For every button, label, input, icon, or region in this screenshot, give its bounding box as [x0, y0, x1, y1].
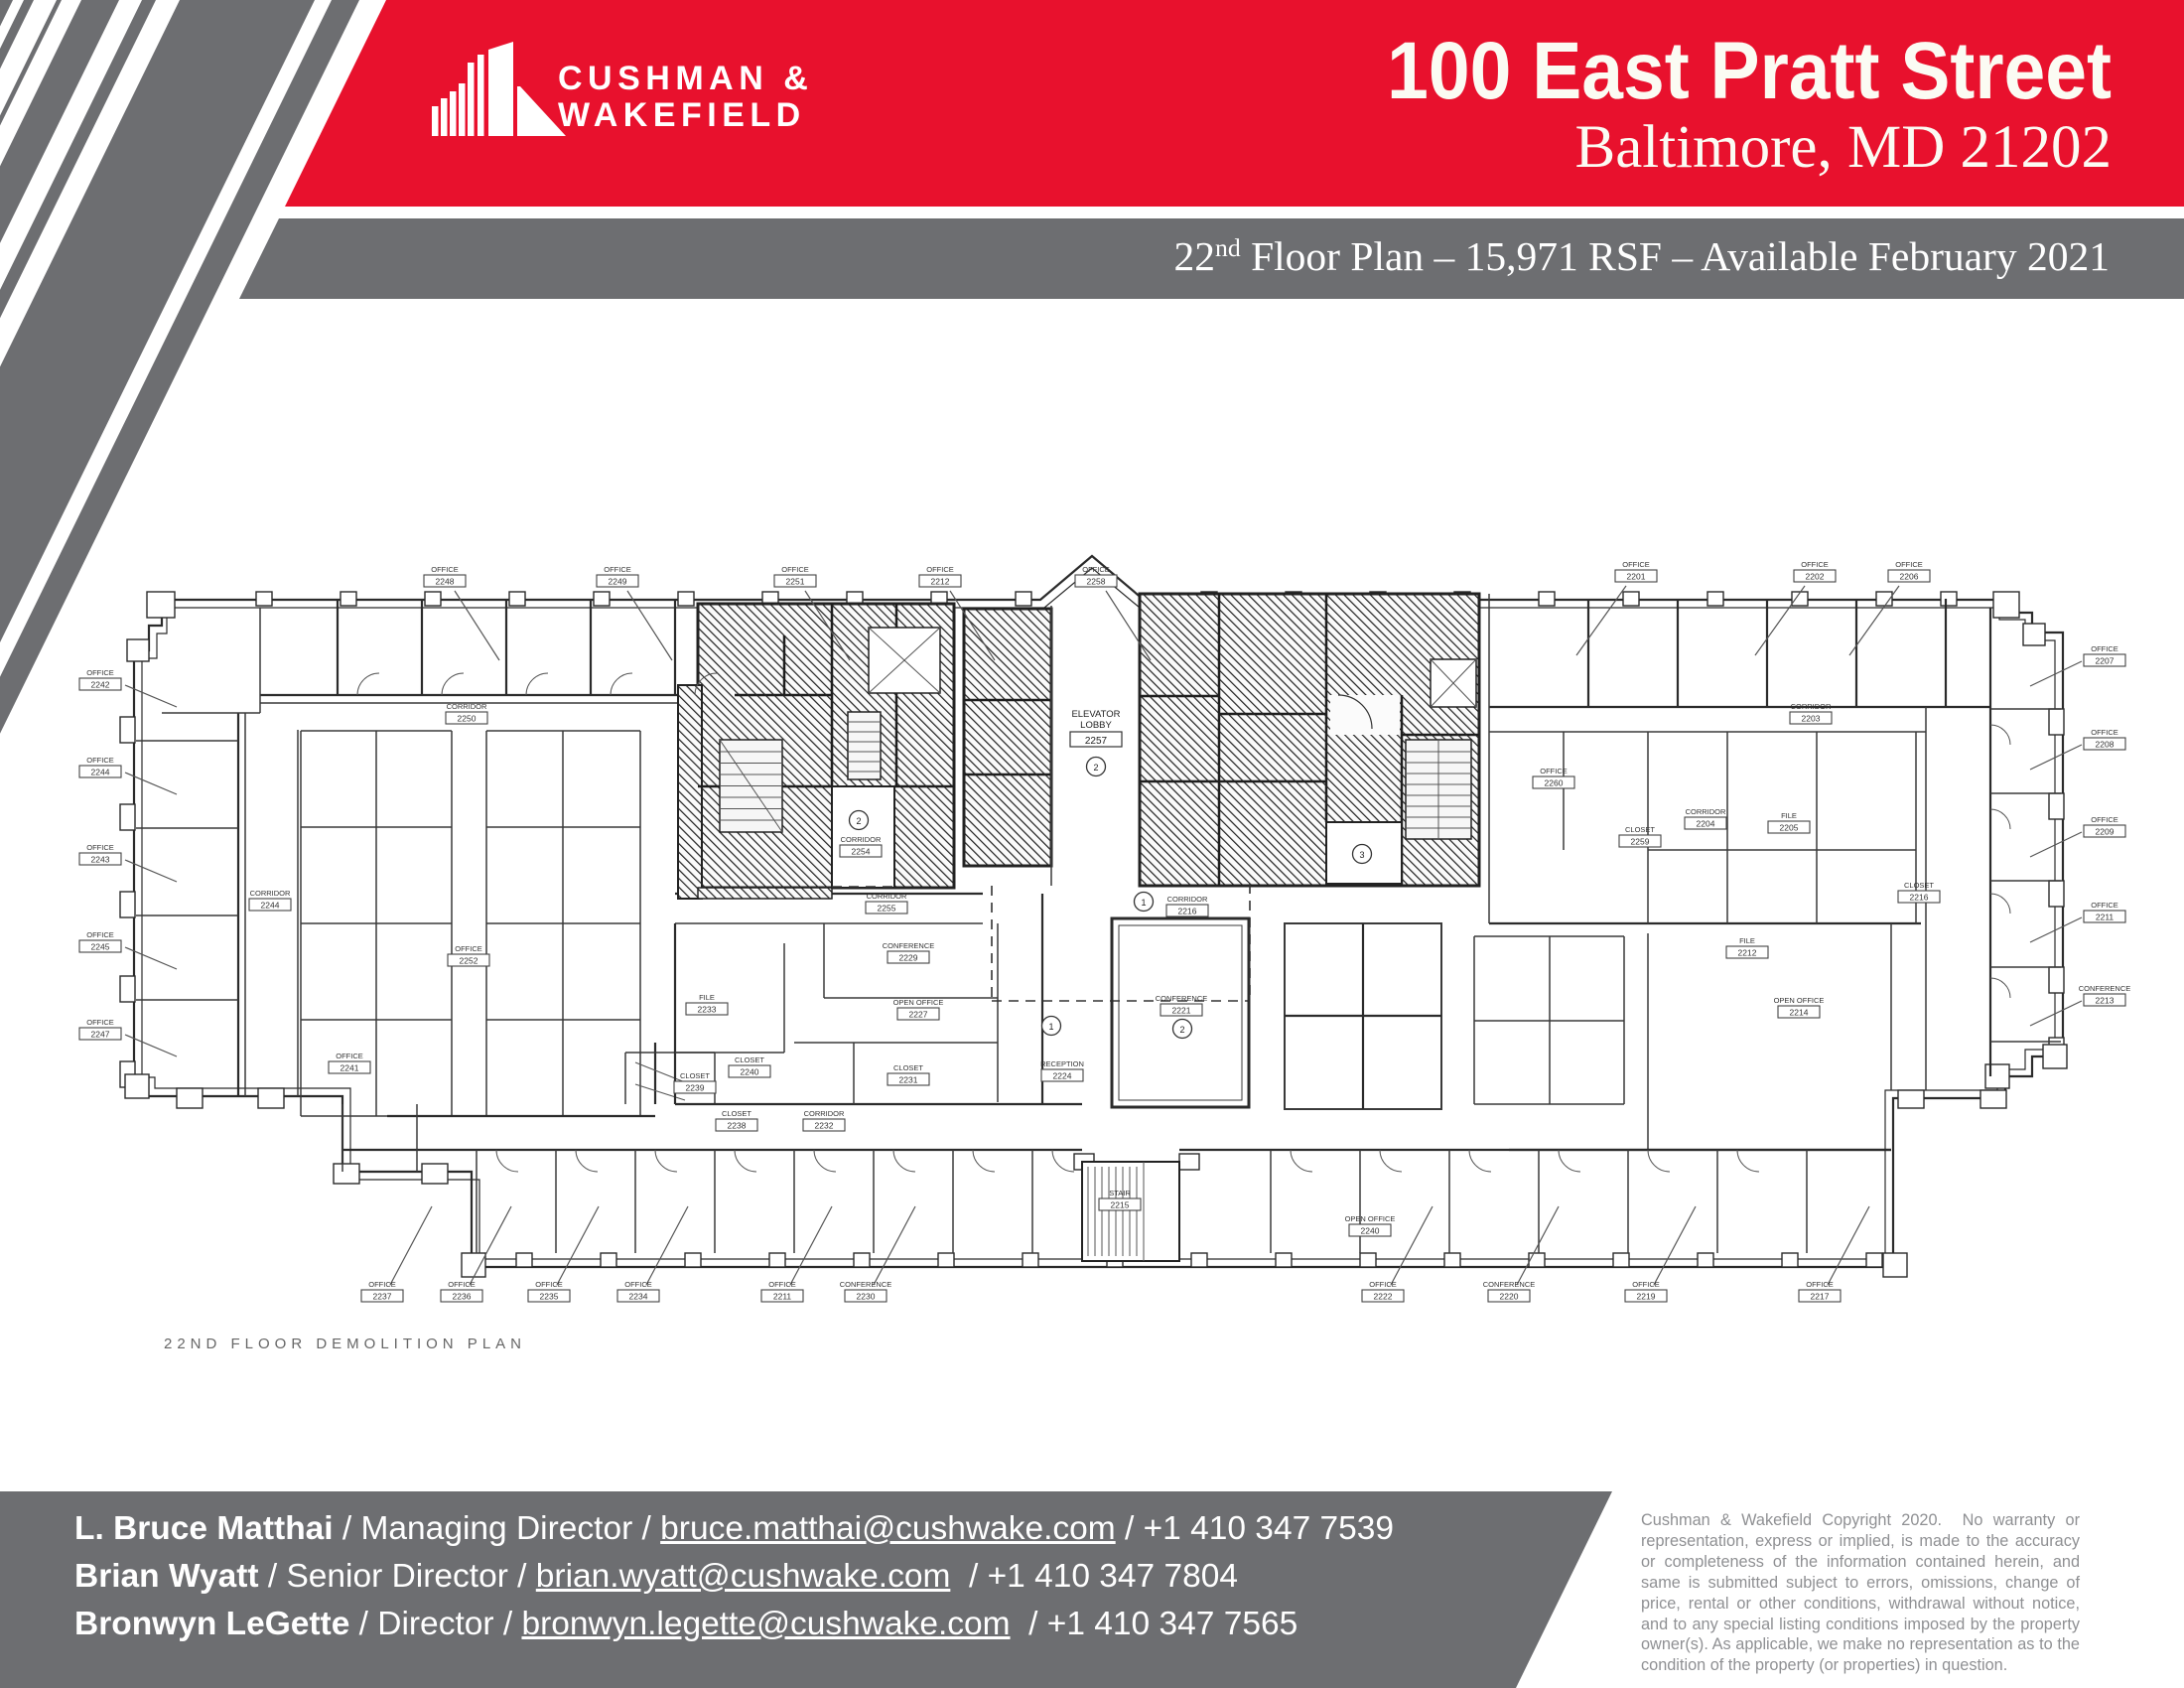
svg-text:OFFICE: OFFICE	[926, 565, 954, 574]
svg-text:OFFICE: OFFICE	[431, 565, 459, 574]
svg-text:OFFICE: OFFICE	[2091, 728, 2118, 737]
svg-text:2208: 2208	[2096, 740, 2115, 750]
svg-text:OFFICE: OFFICE	[368, 1280, 396, 1289]
svg-text:2221: 2221	[1172, 1006, 1191, 1016]
svg-text:2219: 2219	[1637, 1292, 1656, 1302]
svg-text:CONFERENCE: CONFERENCE	[1483, 1280, 1536, 1289]
svg-text:2220: 2220	[1500, 1292, 1519, 1302]
svg-text:CLOSET: CLOSET	[680, 1071, 710, 1080]
svg-text:2204: 2204	[1697, 819, 1715, 829]
svg-text:OFFICE: OFFICE	[2091, 644, 2118, 653]
svg-text:2254: 2254	[852, 847, 871, 857]
svg-text:2240: 2240	[741, 1067, 759, 1077]
svg-text:2234: 2234	[629, 1292, 648, 1302]
svg-text:CLOSET: CLOSET	[722, 1109, 751, 1118]
svg-text:2203: 2203	[1802, 714, 1821, 724]
svg-text:2224: 2224	[1053, 1071, 1072, 1081]
svg-text:OFFICE: OFFICE	[86, 1018, 114, 1027]
svg-text:CORRIDOR: CORRIDOR	[1167, 895, 1208, 904]
svg-text:2252: 2252	[460, 956, 478, 966]
svg-text:2209: 2209	[2096, 827, 2115, 837]
svg-text:CLOSET: CLOSET	[1625, 825, 1655, 834]
svg-text:2260: 2260	[1545, 778, 1564, 788]
svg-text:OFFICE: OFFICE	[604, 565, 631, 574]
svg-text:FILE: FILE	[1781, 811, 1797, 820]
svg-text:OFFICE: OFFICE	[2091, 815, 2118, 824]
svg-text:LOBBY: LOBBY	[1080, 720, 1112, 731]
svg-text:2222: 2222	[1374, 1292, 1393, 1302]
svg-text:2242: 2242	[91, 680, 110, 690]
svg-text:OFFICE: OFFICE	[1622, 560, 1650, 569]
svg-text:2232: 2232	[815, 1121, 834, 1131]
svg-text:2257: 2257	[1085, 736, 1108, 747]
svg-text:OFFICE: OFFICE	[1895, 560, 1923, 569]
svg-text:2251: 2251	[786, 577, 805, 587]
svg-text:OFFICE: OFFICE	[1632, 1280, 1660, 1289]
svg-text:2206: 2206	[1900, 572, 1919, 582]
svg-text:RECEPTION: RECEPTION	[1040, 1059, 1084, 1068]
svg-text:2255: 2255	[878, 904, 896, 914]
svg-text:CORRIDOR: CORRIDOR	[804, 1109, 845, 1118]
svg-text:2211: 2211	[2096, 913, 2115, 922]
svg-text:2: 2	[1179, 1025, 1184, 1035]
svg-text:1: 1	[1048, 1022, 1053, 1032]
svg-text:OFFICE: OFFICE	[86, 843, 114, 852]
svg-text:OFFICE: OFFICE	[624, 1280, 652, 1289]
svg-text:CONFERENCE: CONFERENCE	[1156, 994, 1208, 1003]
svg-text:OFFICE: OFFICE	[455, 944, 482, 953]
svg-text:2236: 2236	[453, 1292, 472, 1302]
svg-text:OFFICE: OFFICE	[2091, 901, 2118, 910]
svg-text:CORRIDOR: CORRIDOR	[250, 889, 291, 898]
svg-text:1: 1	[1141, 898, 1146, 908]
svg-text:OFFICE: OFFICE	[448, 1280, 476, 1289]
svg-text:2215: 2215	[1111, 1200, 1130, 1210]
svg-text:OFFICE: OFFICE	[86, 756, 114, 765]
svg-text:2239: 2239	[686, 1083, 705, 1093]
svg-text:CLOSET: CLOSET	[1904, 881, 1934, 890]
svg-text:CORRIDOR: CORRIDOR	[1791, 702, 1832, 711]
svg-text:2241: 2241	[341, 1063, 359, 1073]
svg-text:CORRIDOR: CORRIDOR	[447, 702, 487, 711]
svg-text:2230: 2230	[857, 1292, 876, 1302]
svg-text:OFFICE: OFFICE	[86, 668, 114, 677]
svg-text:FILE: FILE	[699, 993, 715, 1002]
svg-text:2243: 2243	[91, 855, 110, 865]
svg-text:ELEVATOR: ELEVATOR	[1071, 709, 1120, 720]
svg-text:CLOSET: CLOSET	[893, 1063, 923, 1072]
svg-text:2238: 2238	[728, 1121, 747, 1131]
svg-text:OPEN OFFICE: OPEN OFFICE	[1774, 996, 1825, 1005]
svg-text:3: 3	[1359, 850, 1364, 860]
svg-text:CLOSET: CLOSET	[735, 1055, 764, 1064]
svg-text:OFFICE: OFFICE	[86, 930, 114, 939]
svg-text:2213: 2213	[2096, 996, 2115, 1006]
svg-text:CORRIDOR: CORRIDOR	[867, 892, 907, 901]
svg-text:2212: 2212	[931, 577, 950, 587]
svg-text:OPEN OFFICE: OPEN OFFICE	[893, 998, 944, 1007]
svg-text:STAIR: STAIR	[1109, 1189, 1131, 1197]
svg-text:2227: 2227	[909, 1010, 928, 1020]
svg-text:2: 2	[1093, 763, 1098, 773]
svg-text:2248: 2248	[436, 577, 455, 587]
svg-text:2258: 2258	[1087, 577, 1106, 587]
svg-text:CONFERENCE: CONFERENCE	[2079, 984, 2131, 993]
svg-text:2244: 2244	[261, 901, 280, 911]
svg-text:2212: 2212	[1738, 948, 1757, 958]
svg-text:2207: 2207	[2096, 656, 2115, 666]
svg-text:2233: 2233	[698, 1005, 717, 1015]
svg-text:2237: 2237	[373, 1292, 392, 1302]
svg-text:2245: 2245	[91, 942, 110, 952]
svg-text:2235: 2235	[540, 1292, 559, 1302]
svg-text:2217: 2217	[1811, 1292, 1830, 1302]
svg-text:CORRIDOR: CORRIDOR	[841, 835, 882, 844]
svg-text:2216: 2216	[1910, 893, 1929, 903]
svg-text:OFFICE: OFFICE	[1369, 1280, 1397, 1289]
svg-text:2214: 2214	[1790, 1008, 1809, 1018]
svg-text:OFFICE: OFFICE	[768, 1280, 796, 1289]
svg-text:2244: 2244	[91, 768, 110, 777]
svg-text:2: 2	[856, 816, 861, 826]
svg-text:2249: 2249	[609, 577, 627, 587]
svg-text:2211: 2211	[773, 1292, 792, 1302]
svg-text:2202: 2202	[1806, 572, 1825, 582]
svg-text:CONFERENCE: CONFERENCE	[840, 1280, 892, 1289]
svg-text:2229: 2229	[899, 953, 918, 963]
svg-text:2240: 2240	[1361, 1226, 1380, 1236]
svg-text:OFFICE: OFFICE	[1540, 767, 1568, 775]
svg-text:FILE: FILE	[1739, 936, 1755, 945]
svg-text:2247: 2247	[91, 1030, 110, 1040]
svg-text:OFFICE: OFFICE	[1082, 565, 1110, 574]
svg-text:OFFICE: OFFICE	[535, 1280, 563, 1289]
svg-text:2250: 2250	[458, 714, 477, 724]
svg-text:2201: 2201	[1627, 572, 1646, 582]
svg-text:CORRIDOR: CORRIDOR	[1686, 807, 1726, 816]
svg-text:CONFERENCE: CONFERENCE	[883, 941, 935, 950]
svg-text:22ND FLOOR DEMOLITION PLAN: 22ND FLOOR DEMOLITION PLAN	[164, 1336, 521, 1352]
svg-text:OFFICE: OFFICE	[1801, 560, 1829, 569]
svg-text:2231: 2231	[899, 1075, 918, 1085]
svg-text:2216: 2216	[1178, 907, 1197, 916]
svg-text:OFFICE: OFFICE	[781, 565, 809, 574]
svg-text:OFFICE: OFFICE	[336, 1052, 363, 1060]
svg-text:2205: 2205	[1780, 823, 1799, 833]
svg-text:2259: 2259	[1631, 837, 1650, 847]
svg-text:OFFICE: OFFICE	[1806, 1280, 1834, 1289]
svg-text:OPEN OFFICE: OPEN OFFICE	[1345, 1214, 1396, 1223]
